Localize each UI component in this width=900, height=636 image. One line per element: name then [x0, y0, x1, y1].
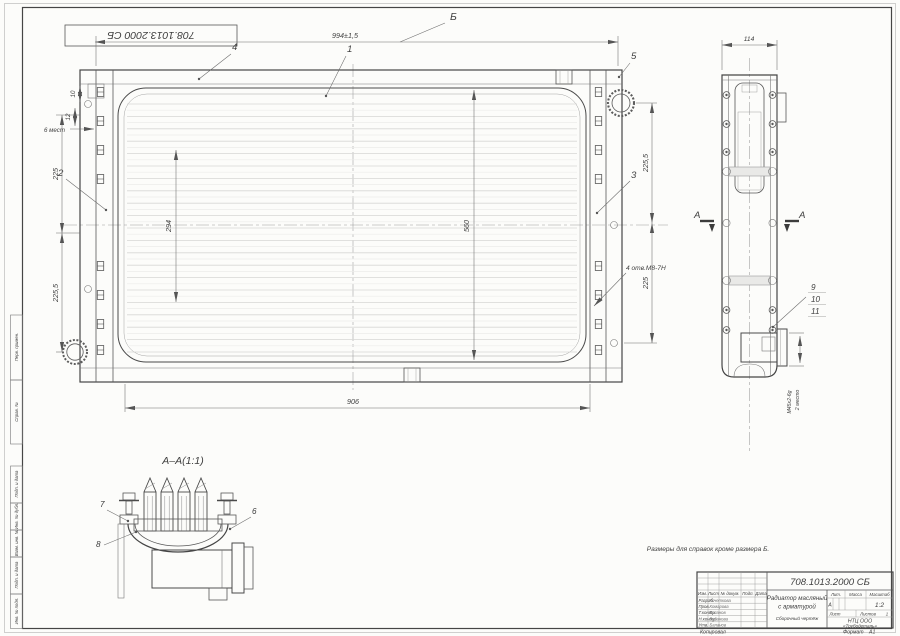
doc-type: Сборочный чертёж	[776, 615, 819, 621]
format-label: Формат	[843, 630, 864, 636]
dim-b-label: Б	[450, 11, 457, 23]
drawing-sheet: Перв. примен. Справ. № Подп. и дата Инв.…	[0, 0, 900, 636]
callout-10: 10	[811, 295, 821, 304]
col-doc: № докум.	[721, 591, 740, 596]
clamp-strap-tail	[118, 524, 124, 598]
section-letter-left: А	[693, 210, 700, 221]
copied-label: Копировал	[700, 630, 726, 636]
col-data: Дата	[754, 591, 767, 596]
frame-label-podl: Инв. № подл.	[14, 598, 19, 625]
section-title: А–А(1:1)	[161, 455, 203, 467]
frame-label-podp2: Подп. и дата	[14, 561, 19, 589]
top-stamp: 708.1013.2000 СБ	[65, 25, 237, 46]
dim-right-lower: 225	[641, 276, 650, 290]
dim-top-width: 994±1,5	[332, 31, 359, 40]
dim-core-294: 294	[164, 220, 173, 233]
sheet-header: Лист	[828, 611, 840, 616]
name-nkontr: Буданова	[710, 616, 729, 621]
side-boss	[777, 93, 786, 122]
tie-plate-top	[556, 70, 572, 84]
sheet-frame	[5, 4, 896, 633]
callout-9: 9	[811, 283, 816, 292]
format-value: А1	[868, 630, 875, 636]
sheets-header: Листов	[859, 611, 876, 616]
dim-bottom-width: 906	[347, 397, 359, 406]
clamp-bolt-left	[119, 493, 139, 514]
col-podp: Подп.	[742, 591, 753, 596]
section-tubes	[144, 478, 207, 531]
scale-value: 1:2	[875, 602, 884, 609]
col-izm: Изм.	[698, 591, 707, 596]
callout-1: 1	[347, 44, 352, 55]
side-view: А А 114 9 10 11 М45х2-6g 2 место	[693, 36, 826, 452]
section-view: А–А(1:1)	[96, 455, 257, 600]
oil-port-top-right	[608, 90, 634, 116]
col-list: Лист	[707, 591, 719, 596]
part-name-2: с арматурой	[778, 604, 816, 611]
dim-core-560: 560	[462, 220, 471, 232]
tie-plate-bottom	[404, 368, 420, 382]
callout-3: 3	[631, 170, 637, 181]
places-6-note: 6 мест	[44, 127, 65, 134]
dim-left-upper: 225	[51, 167, 60, 181]
org-name-2: «Трубодеталь»	[843, 623, 877, 628]
dim-side-width: 114	[744, 36, 755, 43]
callout-7: 7	[100, 500, 105, 509]
frame-label-dubl: Инв. № дубл.	[14, 503, 19, 529]
sheets-value: 1	[886, 611, 889, 616]
lit-header: Лит.	[830, 592, 841, 597]
dim-10: 10	[70, 90, 77, 97]
section-letter-right: А	[798, 210, 805, 221]
callout-11: 11	[811, 307, 820, 316]
scale-header: Масштаб	[869, 592, 890, 597]
doc-number: 708.1013.2000 СБ	[790, 577, 870, 588]
lit-value: А	[827, 603, 832, 609]
places-2-note: 2 место	[795, 390, 801, 412]
role-utv: Утв.	[699, 623, 709, 628]
section-marks: А А	[693, 210, 805, 232]
holes-note: 4 отв.М8-7Н	[626, 265, 666, 272]
clamp-bolt-right	[217, 493, 237, 514]
dim-right-upper: 225,5	[641, 153, 650, 173]
callout-6: 6	[252, 507, 257, 516]
frame-label-sprav: Справ. №	[14, 402, 19, 422]
side-port	[741, 329, 787, 366]
main-view	[63, 64, 668, 390]
thread-note: М45х2-6g	[787, 390, 793, 413]
callout-5: 5	[631, 51, 637, 62]
name-utv: Баланов	[710, 623, 727, 628]
mass-header: Масса	[849, 592, 862, 597]
dim-left-lower: 225,5	[51, 283, 60, 303]
frame-label-vzam: Взам. инв. №	[14, 529, 19, 556]
side-callouts: 9 10 11	[772, 283, 826, 328]
name-prov: Комарова	[710, 604, 730, 609]
title-block: Изм. Лист № докум. Подп. Дата Разраб. Ко…	[697, 572, 893, 628]
top-stamp-number: 708.1013.2000 СБ	[107, 29, 195, 41]
callout-4: 4	[232, 42, 237, 53]
dim-12: 12	[65, 113, 72, 120]
name-tkontr: Буланов	[710, 610, 727, 615]
title-block-signatures: Изм. Лист № докум. Подп. Дата Разраб. Ко…	[697, 572, 767, 628]
title-block-name: Радиатор масляный с арматурой Сборочный …	[767, 595, 828, 621]
name-razrab: Кочеткова	[710, 598, 732, 603]
frame-left-column: Перв. примен. Справ. № Подп. и дата Инв.…	[11, 315, 23, 629]
role-prov: Пров.	[699, 604, 710, 609]
reference-note: Размеры для справок кроме размера Б.	[647, 545, 770, 553]
core-fins	[127, 104, 577, 352]
callout-8: 8	[96, 540, 101, 549]
frame-label-perv: Перв. примен.	[14, 333, 19, 362]
title-block-right: Лит. Масса Масштаб А 1:2 Лист Листов 1 Н…	[827, 590, 893, 628]
frame-label-podp1: Подп. и дата	[14, 470, 19, 498]
part-name-1: Радиатор масляный	[767, 595, 828, 602]
oil-port-bottom-left	[63, 340, 87, 364]
